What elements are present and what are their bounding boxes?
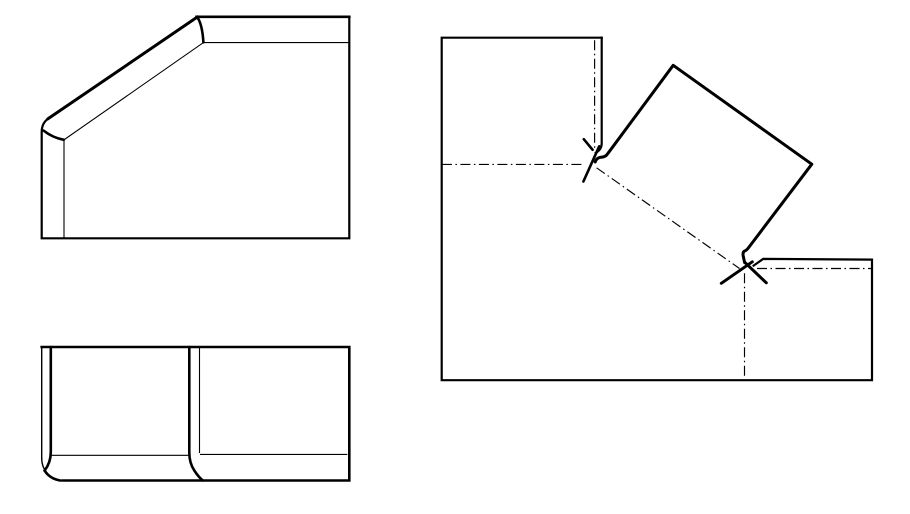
front-view bbox=[42, 17, 350, 239]
bend1-mark-slash bbox=[583, 146, 599, 181]
front-outline bbox=[42, 17, 350, 239]
flat-tab-right-edge bbox=[596, 38, 602, 153]
front-bend-arc-top bbox=[197, 17, 203, 42]
top-outer-edges bbox=[42, 347, 350, 481]
bend-centerline-diag bbox=[597, 168, 740, 269]
top-bend-arc-corner bbox=[45, 471, 60, 481]
top-bend-line-left bbox=[45, 347, 51, 471]
drawing-canvas bbox=[0, 0, 910, 514]
front-bend-arc-bottom bbox=[44, 131, 64, 140]
top-bend-curve-mid bbox=[189, 347, 203, 481]
bend2-mark-tick bbox=[745, 263, 766, 283]
flat-pattern-view bbox=[442, 38, 872, 381]
bend1-mark-tick bbox=[584, 139, 593, 150]
flat-flange-outline bbox=[595, 65, 812, 262]
top-view bbox=[42, 347, 350, 481]
technical-drawing bbox=[0, 0, 910, 514]
front-inner-chamfer-line bbox=[64, 43, 203, 140]
front-chamfer-edge bbox=[48, 17, 198, 119]
